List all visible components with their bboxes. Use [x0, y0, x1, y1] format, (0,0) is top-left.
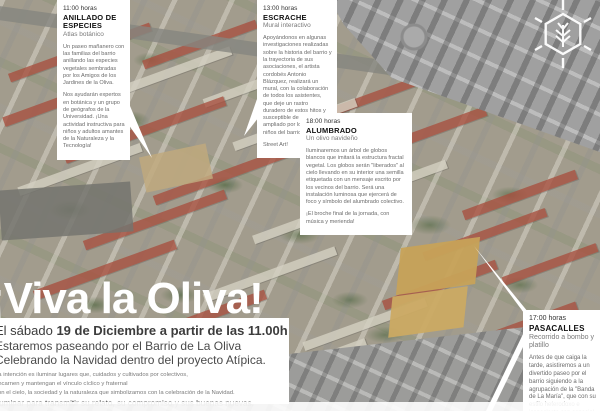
intro-panel: El sábado 19 de Diciembre a partir de la… [0, 318, 289, 404]
event-paragraph: Iluminaremos un árbol de globos blancos … [306, 148, 407, 206]
callout-anillado: 11:00 horas ANILLADO DE ESPECIES Atlas b… [57, 0, 130, 160]
date-bold: 19 de Diciembre a partir de las 11.00h [56, 323, 287, 338]
event-name: PASACALLES [529, 324, 598, 333]
building-block [462, 170, 578, 220]
event-paragraph: Un paseo mañanero con las familias del b… [63, 44, 125, 88]
event-paragraph: Nos ayudarán expertos en botánica y un g… [63, 92, 125, 150]
event-name: ESCRACHE [263, 14, 332, 23]
event-time: 18:00 horas [306, 118, 407, 126]
event-name: ANILLADO DE ESPECIES [63, 14, 125, 31]
event-subtitle: Mural interactivo [263, 22, 332, 30]
poster-canvas: ¡Viva la Oliva! El sábado 19 de Diciembr… [0, 0, 600, 411]
intro-line-2: Estaremos paseando por el Barrio de La O… [0, 339, 289, 353]
aerial-schoolyard [0, 181, 134, 240]
event-subtitle: Recorrido a bombo y platillo [529, 334, 598, 351]
event-subtitle: Un olivo navideño [306, 135, 407, 143]
event-time: 11:00 horas [63, 5, 125, 13]
building-block [501, 243, 598, 286]
callout-pasacalles: 17:00 horas PASACALLES Recorrido a bombo… [523, 310, 600, 411]
intro-small-line-3: con el cielo, la sociedad y la naturalez… [0, 389, 289, 398]
callout-alumbrado: 18:00 horas ALUMBRADO Un olivo navideño … [300, 113, 412, 235]
event-time: 13:00 horas [263, 5, 332, 13]
event-name: ALUMBRADO [306, 127, 407, 136]
poster-title: ¡Viva la Oliva! [0, 277, 263, 321]
bottom-white-strip [0, 402, 600, 411]
intro-line-3: Celebrando la Navidad dentro del proyect… [0, 353, 289, 367]
event-subtitle: Atlas botánico [63, 31, 125, 39]
date-prefix: El sábado [0, 323, 56, 338]
date-line: El sábado 19 de Diciembre a partir de la… [0, 323, 289, 339]
event-paragraph: ¡El broche final de la jornada, con músi… [306, 211, 407, 226]
intro-small-line-1: La intención es iluminar lugares que, cu… [0, 371, 289, 380]
event-time: 17:00 horas [529, 315, 598, 323]
intro-small-line-2: encarnen y mantengan el vínculo cíclico … [0, 380, 289, 389]
